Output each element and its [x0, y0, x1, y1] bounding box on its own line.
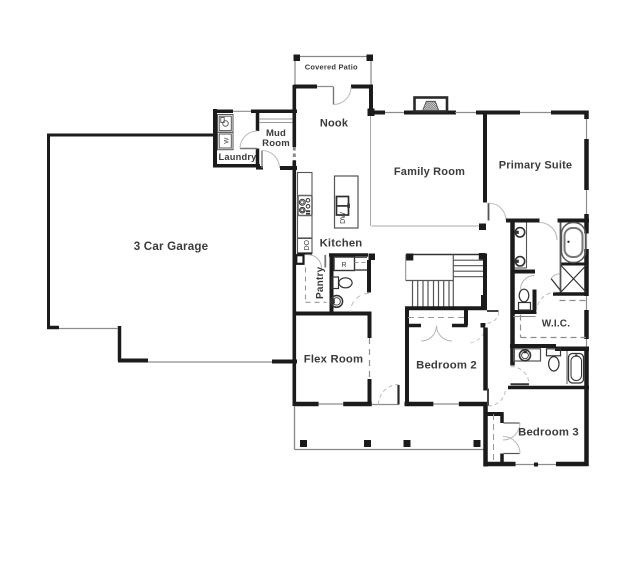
svg-text:Nook: Nook [320, 118, 349, 130]
svg-text:Covered Patio: Covered Patio [305, 63, 358, 72]
svg-text:W: W [223, 137, 230, 144]
svg-text:Flex Room: Flex Room [304, 354, 364, 366]
svg-text:Pantry: Pantry [315, 266, 326, 299]
svg-text:Bedroom 3: Bedroom 3 [518, 427, 579, 439]
svg-text:Family Room: Family Room [394, 166, 465, 178]
svg-text:W.I.C.: W.I.C. [542, 319, 570, 330]
svg-text:R: R [341, 262, 346, 269]
svg-text:DW: DW [340, 212, 347, 224]
svg-text:Laundry: Laundry [218, 152, 257, 162]
svg-text:Bedroom 2: Bedroom 2 [416, 360, 477, 372]
svg-text:Kitchen: Kitchen [320, 238, 363, 250]
svg-text:DO: DO [304, 239, 311, 250]
svg-text:Primary Suite: Primary Suite [499, 160, 573, 172]
svg-text:3 Car Garage: 3 Car Garage [134, 240, 209, 253]
svg-text:Room: Room [262, 138, 290, 149]
